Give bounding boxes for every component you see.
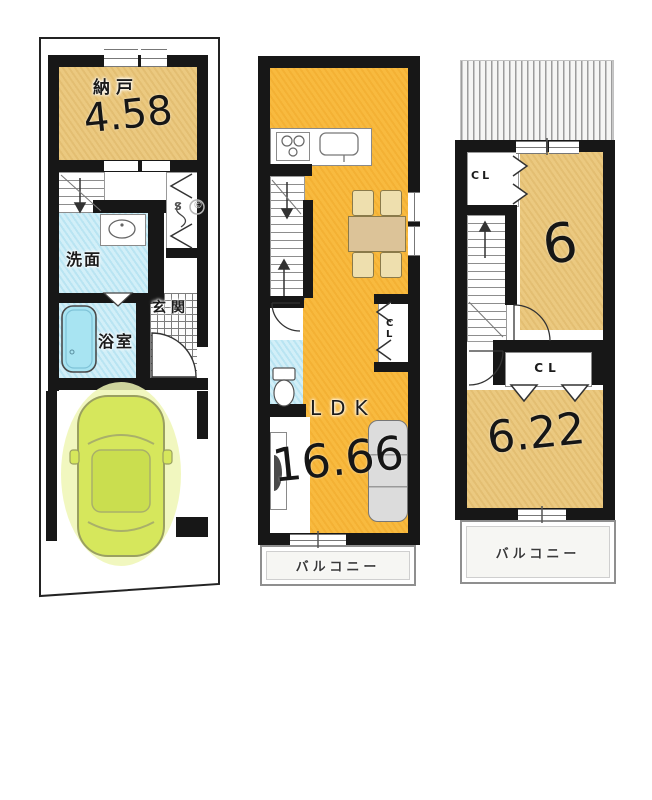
door-arc-icon: [272, 303, 300, 331]
door-arc-icon: [514, 305, 550, 341]
f1-entrance-label: 玄関: [152, 297, 190, 317]
stove-burners-icon: [282, 136, 304, 156]
floor-plan-canvas: バルコニー バルコニー: [0, 0, 652, 800]
stairs-arrow-icon: [469, 222, 503, 337]
bathtub-icon: [62, 306, 96, 372]
stairs-arrow-icon: [61, 175, 101, 212]
f3-closet-mid-label: CL: [505, 354, 590, 382]
door-arc-icon: [152, 333, 196, 377]
door-notch-icon: [104, 293, 132, 306]
f1-bathroom-label: 浴室: [98, 328, 134, 352]
closet-door-icon: [513, 156, 527, 204]
washbasin-icon: [109, 220, 135, 238]
door-arc-icon: [469, 351, 503, 385]
f3-closet-top-label: CL: [471, 169, 492, 182]
car-icon: [61, 382, 181, 566]
f1-closet-symbol: S: [174, 200, 182, 213]
f1-copyright-mark: ©: [193, 200, 203, 211]
kitchen-sink-icon: [320, 133, 358, 162]
f1-washroom-label: 洗面: [66, 246, 102, 270]
closet-door-icon: [511, 385, 588, 401]
toilet-icon: [273, 368, 295, 406]
stairs-arrow-icon: [272, 180, 301, 296]
f2-room-label: LDK: [310, 396, 377, 420]
f2-closet-label: CL: [386, 319, 397, 340]
f3-room-top-area: 6: [523, 207, 596, 279]
